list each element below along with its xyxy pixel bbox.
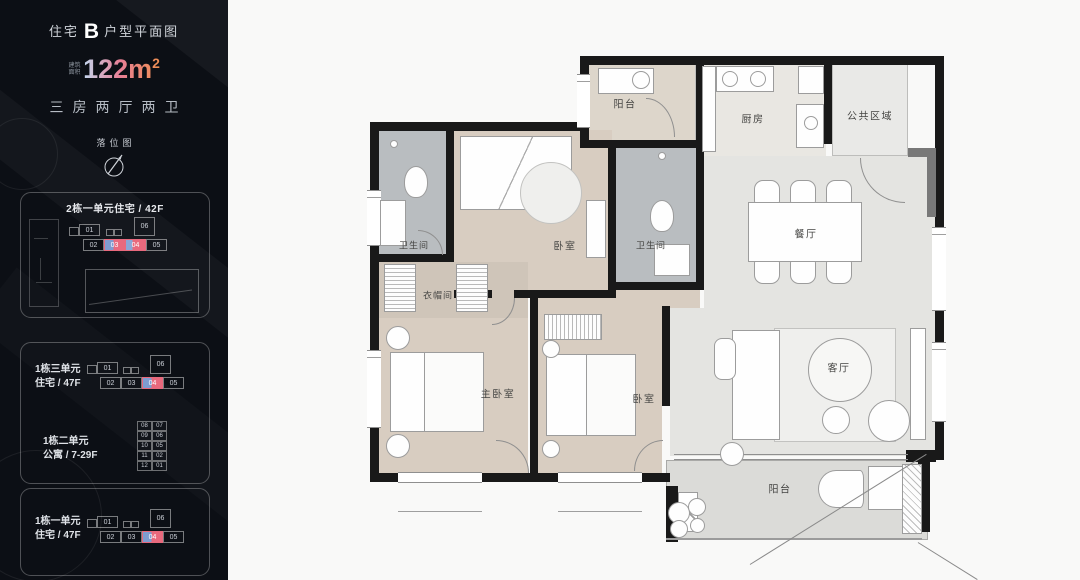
nightstand [386,434,410,458]
armchair [714,338,736,380]
compass-icon [101,152,127,185]
balcony-glass-door [674,454,908,460]
building-section-card[interactable]: 2栋一单元住宅 / 42F 01 06 02 03 04 05 [20,192,210,318]
window [932,342,946,422]
wall-segment [370,122,589,131]
section-title: 1栋三单元 住宅 / 47F [35,363,81,391]
toilet [404,166,428,198]
room-label-bedroom-right: 卧室 [633,391,656,406]
unit-cell[interactable]: 06 [134,217,155,236]
unit-cell[interactable]: 06 [150,509,171,528]
window [398,472,482,483]
unit-cell-highlighted[interactable]: 04 [125,239,146,251]
area-figure: 建筑面积 122m2 [0,54,228,85]
floorplan: 阳台 厨房 公共区域 卫生间 卧室 卫生间 衣帽间 主卧室 卧室 餐厅 客厅 阳… [362,52,962,568]
bathtub [818,470,864,508]
wall-segment-gray [908,148,936,157]
toilet [650,200,674,232]
unit-cell[interactable]: 06 [152,431,167,441]
wardrobe [456,264,488,312]
layout-summary: 三房两厅两卫 [0,97,228,117]
wall-segment [378,254,448,262]
unit-cell[interactable]: 08 [137,421,152,431]
unit-cell[interactable]: 05 [152,441,167,451]
unit-keyplan: 01 06 02 03 04 05 [87,351,199,397]
room-label-dining: 餐厅 [795,226,818,241]
dining-chair [754,260,780,284]
screenshot-root: 住宅B户型平面图 建筑面积 122m2 三房两厅两卫 落位图 2栋一单元住宅 /… [0,0,1080,580]
unit-keyplan: 01 06 02 03 04 05 [69,215,181,261]
keyplan-core [114,229,122,236]
unit-cell[interactable]: 11 [137,451,152,461]
wardrobe [544,314,602,340]
keyplan-core [131,521,139,528]
keyplan-core [87,519,97,528]
keyplan-core [87,365,97,374]
bed-duvet [424,352,484,432]
plant [690,518,705,533]
unit-cell[interactable]: 02 [152,451,167,461]
unit-cell[interactable]: 05 [163,531,184,543]
unit-cell[interactable]: 02 [100,377,121,389]
wall-segment-gray [927,157,936,217]
unit-cell[interactable]: 03 [121,377,142,389]
site-outline-line [89,290,192,305]
section-title: 2栋一单元住宅 / 42F [21,200,209,215]
site-outline-box [85,269,199,313]
window [577,74,590,128]
wall-segment [662,306,670,406]
unit-cell[interactable]: 01 [97,362,118,374]
unit-cell-highlighted[interactable]: 04 [142,531,163,543]
planter-strip [902,464,922,534]
desk [586,200,606,258]
wall-segment [370,122,379,482]
placement-map-label[interactable]: 落位图 [0,136,228,149]
unit-cell[interactable]: 01 [152,461,167,471]
plant [670,520,688,538]
room-label-bedroom-top: 卧室 [554,238,577,253]
keyplan-core [131,367,139,374]
nightstand [542,440,560,458]
nightstand [386,326,410,350]
area-label: 建筑面积 [68,63,81,77]
section-line [918,542,978,580]
wall-segment [530,298,538,474]
window [558,472,642,483]
wall-segment [514,290,616,298]
unit-cell[interactable]: 01 [97,516,118,528]
unit-cell[interactable]: 10 [137,441,152,451]
section-title: 1栋二单元 公寓 / 7-29F [43,435,97,463]
room-label-balcony-bottom: 阳台 [769,481,792,496]
room-floor-hall [670,308,704,456]
unit-cell[interactable]: 06 [150,355,171,374]
window [367,350,381,428]
wall-segment [608,144,616,290]
window [367,190,381,246]
unit-cell[interactable]: 12 [137,461,152,471]
room-label-balcony-top: 阳台 [614,96,637,111]
dining-chair [790,180,816,204]
unit-cell[interactable]: 05 [146,239,167,251]
bed-duvet [586,354,636,436]
section-title: 1栋一单元 住宅 / 47F [35,515,81,543]
keyplan-core [69,227,79,236]
wall-segment [446,130,454,262]
dining-chair [790,260,816,284]
room-label-bath-left: 卫生间 [399,239,429,252]
tower-keyplan: 0807 0906 1005 1102 1201 [137,421,167,471]
sink-basin [804,116,818,130]
stove-burner [750,71,766,87]
unit-cell[interactable]: 07 [152,421,167,431]
sidebar-panel: 住宅B户型平面图 建筑面积 122m2 三房两厅两卫 落位图 2栋一单元住宅 /… [0,0,228,580]
building-section-card[interactable]: 1栋三单元 住宅 / 47F 01 06 02 03 04 05 [20,342,210,484]
shower-head [658,152,666,160]
wall-segment [824,64,832,144]
unit-cell[interactable]: 02 [100,531,121,543]
lounge-chair [868,400,910,442]
unit-cell[interactable]: 03 [121,531,142,543]
wall-segment [580,56,944,65]
unit-cell-highlighted[interactable]: 04 [142,377,163,389]
fridge [798,66,824,94]
page-title: 住宅B户型平面图 [0,20,228,44]
round-rug [520,162,582,224]
unit-cell-highlighted[interactable]: 03 [104,239,125,251]
building-section-card[interactable]: 1栋一单元 住宅 / 47F 01 06 02 03 04 05 [20,488,210,576]
wall-segment [696,140,704,290]
nightstand [542,340,560,358]
dining-chair [754,180,780,204]
keyplan-core [123,367,131,374]
window [932,227,946,311]
wash-basin [632,71,650,89]
room-label-closet: 衣帽间 [423,289,453,302]
dining-chair [826,180,852,204]
unit-cell[interactable]: 09 [137,431,152,441]
room-label-kitchen: 厨房 [742,111,765,126]
dining-chair [826,260,852,284]
area-value: 122m2 [83,54,160,85]
stove-burner [722,71,738,87]
side-table [720,442,744,466]
kitchen-counter [702,66,716,152]
plant [688,498,706,516]
balcony-rail [666,538,922,540]
sofa [732,330,780,440]
room-label-living: 客厅 [828,360,851,375]
wall-segment [580,140,702,148]
unit-keyplan: 01 06 02 03 04 05 [87,505,199,551]
wardrobe [384,264,416,312]
keyplan-core [123,521,131,528]
shower-head [390,140,398,148]
keyplan-core [106,229,114,236]
wall-segment [608,282,704,290]
room-label-public-area: 公共区域 [847,108,893,123]
unit-cell[interactable]: 01 [79,224,100,236]
room-label-master-bedroom: 主卧室 [481,386,516,401]
room-label-bath-right: 卫生间 [636,239,666,252]
stool [822,406,850,434]
unit-cell[interactable]: 05 [163,377,184,389]
unit-cell[interactable]: 02 [83,239,104,251]
tv-cabinet [910,328,926,440]
floorplate-sketch [29,219,59,307]
